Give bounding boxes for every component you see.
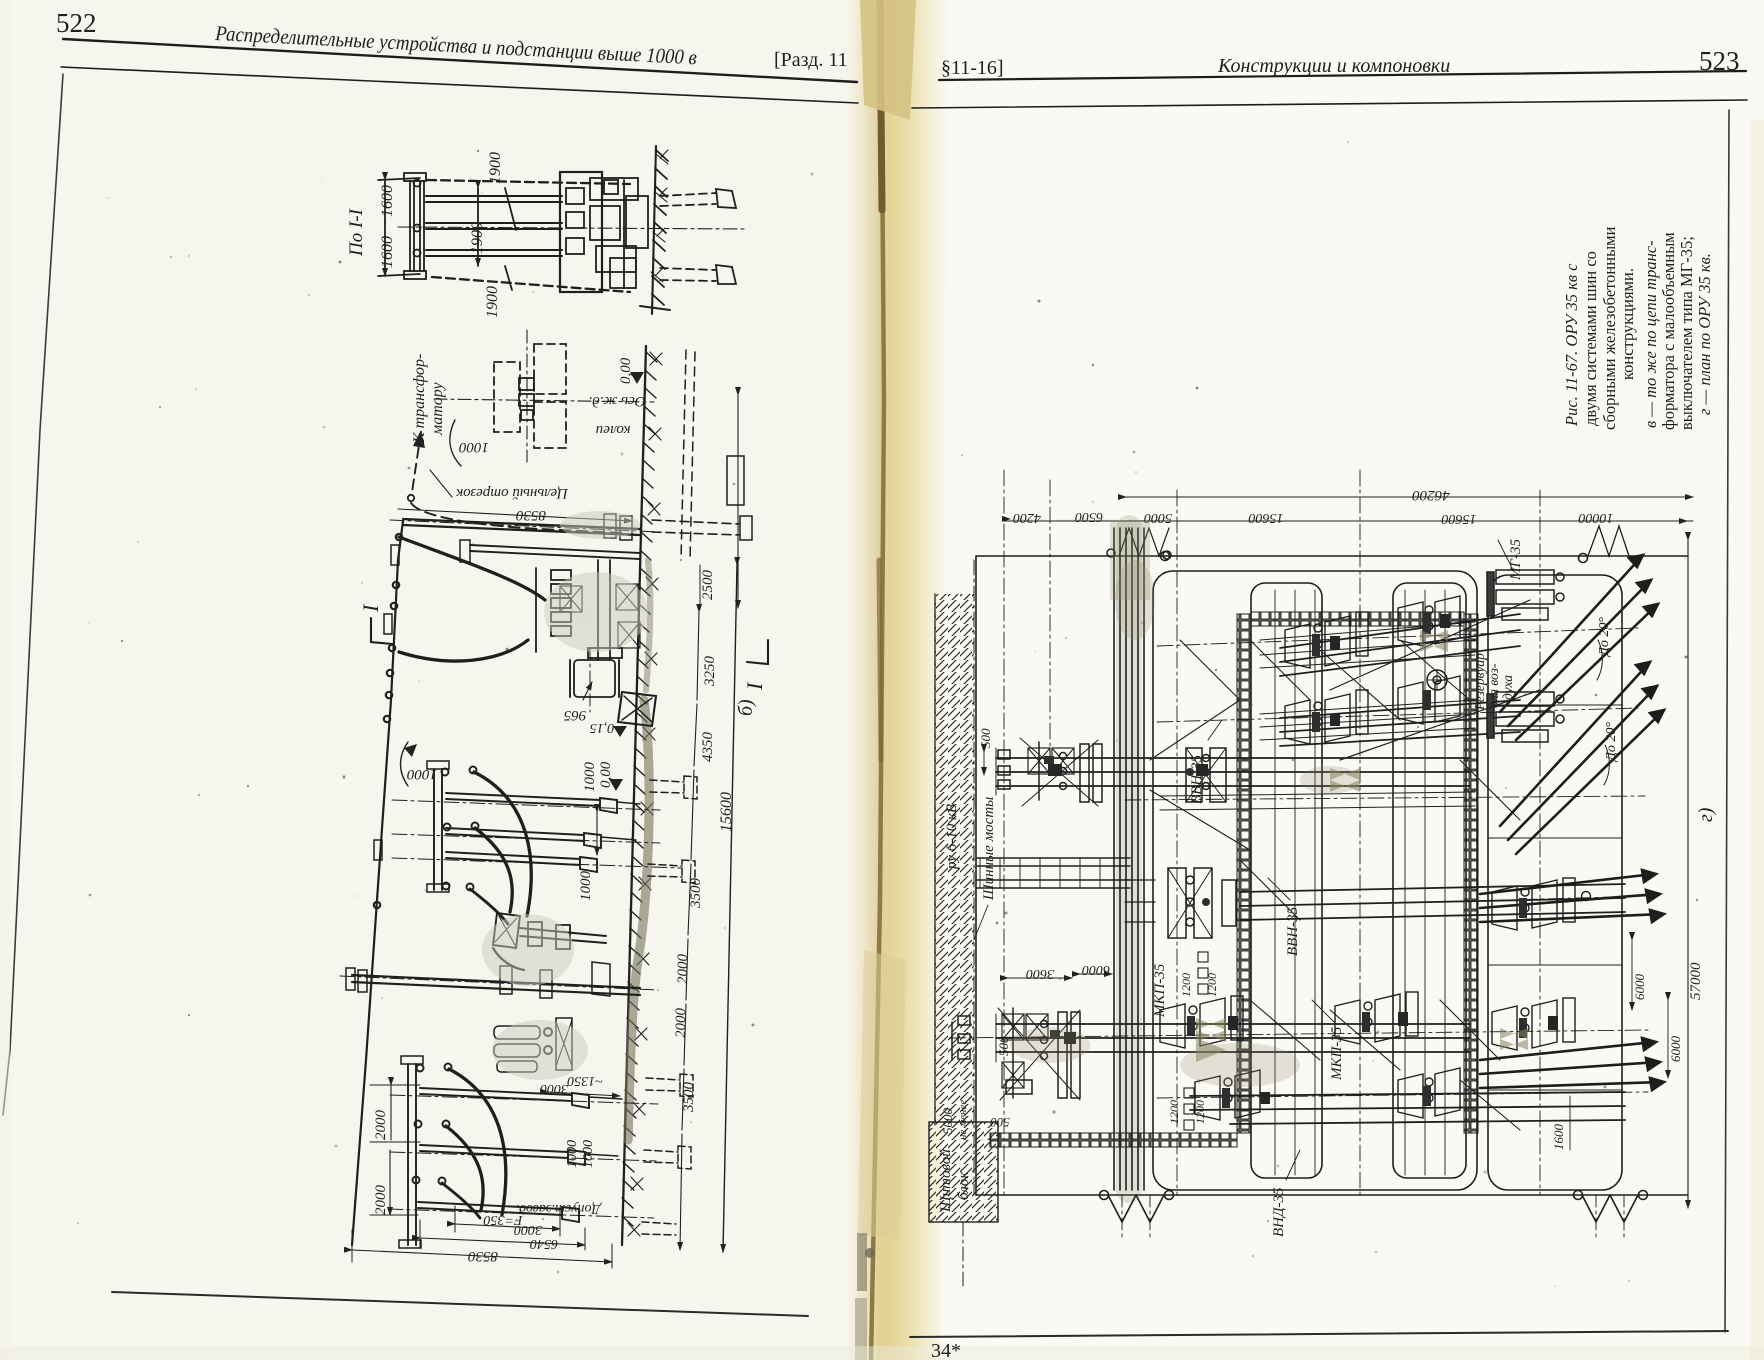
svg-text:500: 500: [978, 728, 993, 748]
svg-text:965: 965: [563, 707, 586, 723]
svg-text:34*: 34*: [931, 1340, 961, 1360]
svg-text:6000: 6000: [1668, 1036, 1683, 1063]
svg-text:Ось ж.д.: Ось ж.д.: [588, 393, 645, 409]
svg-text:1600: 1600: [1551, 1124, 1566, 1151]
svg-text:1200: 1200: [1179, 973, 1193, 997]
svg-text:6000: 6000: [1632, 974, 1647, 1001]
svg-text:До 20°: До 20°: [1597, 617, 1612, 658]
svg-text:Рис. 11-67. ОРУ 35 кв с: Рис. 11-67. ОРУ 35 кв с: [1562, 263, 1581, 427]
svg-text:1600: 1600: [379, 185, 396, 217]
svg-text:1900: 1900: [487, 152, 504, 184]
svg-text:2000: 2000: [373, 1110, 389, 1141]
svg-text:§11-16]: §11-16]: [941, 57, 1004, 79]
svg-text:К трансфор-: К трансфор-: [411, 354, 428, 444]
svg-text:1000: 1000: [582, 762, 598, 793]
svg-text:б): б): [735, 699, 757, 716]
svg-text:1200: 1200: [1193, 1100, 1207, 1124]
svg-text:выключателем типа МГ-35;: выключателем типа МГ-35;: [1677, 236, 1696, 430]
svg-text:Резервуар: Резервуар: [1472, 653, 1487, 711]
svg-text:3000: 3000: [540, 1081, 569, 1096]
svg-text:Допуст.завод.: Допуст.завод.: [516, 1201, 603, 1216]
svg-text:[Разд. 11: [Разд. 11: [774, 49, 848, 71]
svg-text:500: 500: [996, 1036, 1011, 1056]
svg-text:3500: 3500: [688, 878, 704, 910]
svg-text:МГ-35: МГ-35: [1508, 538, 1524, 581]
svg-text:4200: 4200: [1013, 510, 1041, 525]
svg-text:5000: 5000: [940, 1108, 955, 1135]
svg-text:До 20°: До 20°: [1604, 722, 1619, 763]
svg-text:1000: 1000: [407, 766, 438, 782]
svg-text:500: 500: [990, 1115, 1010, 1130]
svg-text:15600: 15600: [718, 792, 735, 832]
svg-text:10000: 10000: [1579, 510, 1614, 525]
svg-text:4350: 4350: [700, 732, 716, 763]
svg-text:1000: 1000: [459, 439, 490, 455]
svg-text:1900: 1900: [484, 286, 501, 318]
svg-text:МКП-35: МКП-35: [1152, 963, 1168, 1018]
svg-text:колеи: колеи: [596, 422, 631, 438]
svg-text:2000: 2000: [673, 1008, 689, 1039]
svg-text:0,00: 0,00: [618, 357, 634, 384]
svg-text:двумя системами шин со: двумя системами шин со: [1581, 251, 1600, 426]
svg-text:1000: 1000: [581, 1140, 596, 1168]
svg-text:6500: 6500: [1075, 509, 1103, 524]
svg-text:сборными железобетонными: сборными железобетонными: [1600, 226, 1619, 430]
svg-text:1000: 1000: [578, 871, 594, 902]
svg-text:Шинные мосты: Шинные мосты: [981, 797, 997, 901]
svg-text:ВВН-35: ВВН-35: [1189, 754, 1205, 804]
svg-text:Щитовой: Щитовой: [938, 1149, 954, 1213]
svg-text:6000: 6000: [1082, 962, 1110, 977]
svg-text:3500: 3500: [681, 1082, 697, 1114]
svg-text:ВВН-35: ВВН-35: [1285, 906, 1301, 956]
svg-text:г — план по ОРУ 35 кв.: г — план по ОРУ 35 кв.: [1695, 253, 1714, 415]
svg-text:1600: 1600: [379, 236, 396, 268]
svg-text:2500: 2500: [700, 570, 716, 601]
svg-text:46200: 46200: [1412, 487, 1450, 503]
svg-text:3000: 3000: [514, 1222, 543, 1237]
svg-text:~1350: ~1350: [567, 1073, 603, 1088]
svg-text:в — то же по цепи транс-: в — то же по цепи транс-: [1641, 240, 1660, 428]
svg-text:0,00: 0,00: [598, 761, 614, 788]
svg-text:1200: 1200: [1167, 1100, 1181, 1124]
svg-text:не менее: не менее: [957, 1100, 969, 1140]
svg-text:15600: 15600: [1442, 511, 1477, 526]
svg-text:522: 522: [56, 8, 97, 38]
svg-text:1200: 1200: [1205, 973, 1219, 997]
svg-text:2000: 2000: [373, 1185, 389, 1216]
svg-text:конструкциями.: конструкциями.: [1618, 268, 1637, 380]
svg-text:2000: 2000: [675, 954, 691, 985]
svg-text:3600: 3600: [1026, 966, 1055, 981]
svg-text:57000: 57000: [1688, 962, 1704, 1000]
svg-text:По I-I: По I-I: [346, 207, 367, 257]
svg-text:матору: матору: [429, 381, 446, 436]
svg-text:Цельный отрезок: Цельный отрезок: [455, 485, 569, 501]
svg-text:ВНД-35: ВНД-35: [1271, 1187, 1287, 1237]
svg-text:форматора с малообъемным: форматора с малообъемным: [1659, 232, 1678, 430]
svg-text:3250: 3250: [702, 656, 718, 688]
svg-text:блок: блок: [956, 1171, 972, 1200]
svg-text:г): г): [1695, 807, 1717, 822]
svg-text:15600: 15600: [1249, 510, 1284, 525]
svg-text:1000: 1000: [565, 1140, 580, 1168]
svg-text:0,15: 0,15: [590, 720, 615, 735]
svg-text:для воз-: для воз-: [1486, 663, 1501, 708]
svg-text:ру 6-10 кВ: ру 6-10 кВ: [944, 804, 960, 870]
svg-text:МКП-35: МКП-35: [1329, 1026, 1345, 1081]
